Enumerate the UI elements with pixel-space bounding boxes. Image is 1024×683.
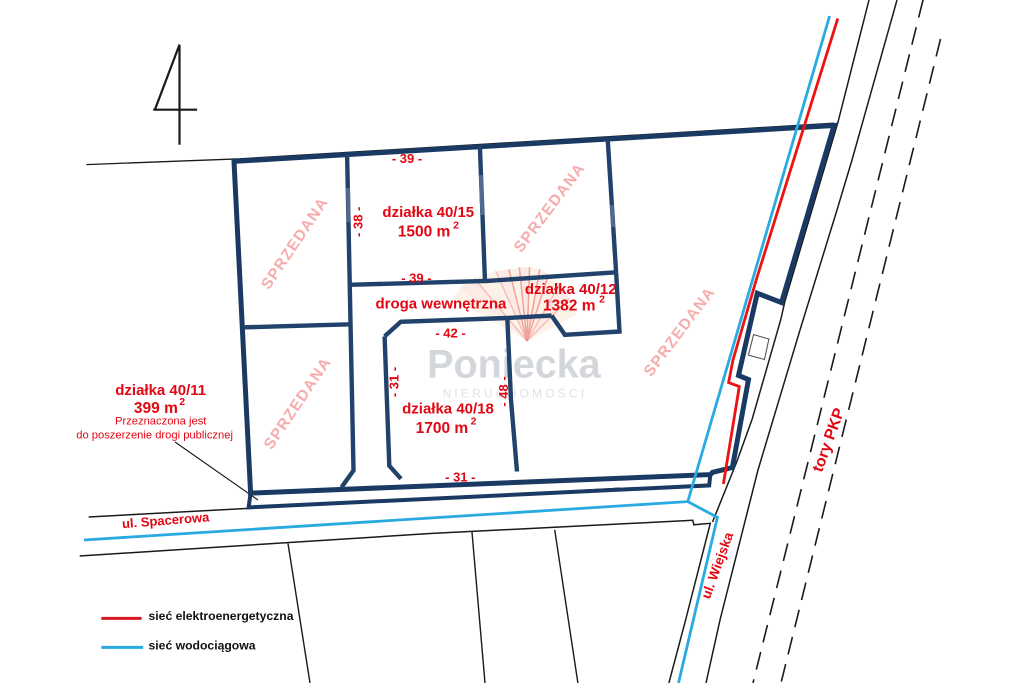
svg-text:2: 2 — [179, 396, 185, 408]
svg-text:Poniecka: Poniecka — [427, 343, 601, 387]
svg-text:NIERUCHOMOŚCI: NIERUCHOMOŚCI — [443, 386, 588, 401]
svg-text:2: 2 — [599, 294, 605, 306]
svg-text:1500 m: 1500 m — [398, 223, 451, 240]
svg-text:- 39 -: - 39 - — [392, 151, 422, 166]
svg-text:sieć elektroenergetyczna: sieć elektroenergetyczna — [149, 609, 294, 623]
svg-text:droga wewnętrzna: droga wewnętrzna — [375, 296, 507, 313]
svg-text:399 m: 399 m — [134, 400, 178, 417]
svg-text:1382 m: 1382 m — [543, 298, 596, 315]
svg-text:- 31 -: - 31 - — [445, 470, 475, 485]
svg-text:- 31 -: - 31 - — [387, 367, 402, 397]
svg-text:sieć wodociągowa: sieć wodociągowa — [149, 639, 256, 653]
svg-text:działka 40/18: działka 40/18 — [402, 401, 494, 418]
svg-text:- 42 -: - 42 - — [435, 326, 465, 341]
svg-text:- 48 -: - 48 - — [496, 376, 511, 406]
svg-text:2: 2 — [471, 416, 477, 428]
svg-text:1700 m: 1700 m — [416, 420, 469, 437]
svg-text:do poszerzenie drogi publiczne: do poszerzenie drogi publicznej — [76, 430, 233, 442]
svg-text:działka 40/11: działka 40/11 — [115, 382, 206, 399]
svg-text:- 38 -: - 38 - — [350, 207, 365, 237]
svg-text:Przeznaczona jest: Przeznaczona jest — [115, 416, 207, 428]
svg-text:2: 2 — [453, 220, 459, 232]
svg-text:działka 40/15: działka 40/15 — [382, 204, 474, 221]
svg-text:- 39 -: - 39 - — [401, 270, 431, 285]
